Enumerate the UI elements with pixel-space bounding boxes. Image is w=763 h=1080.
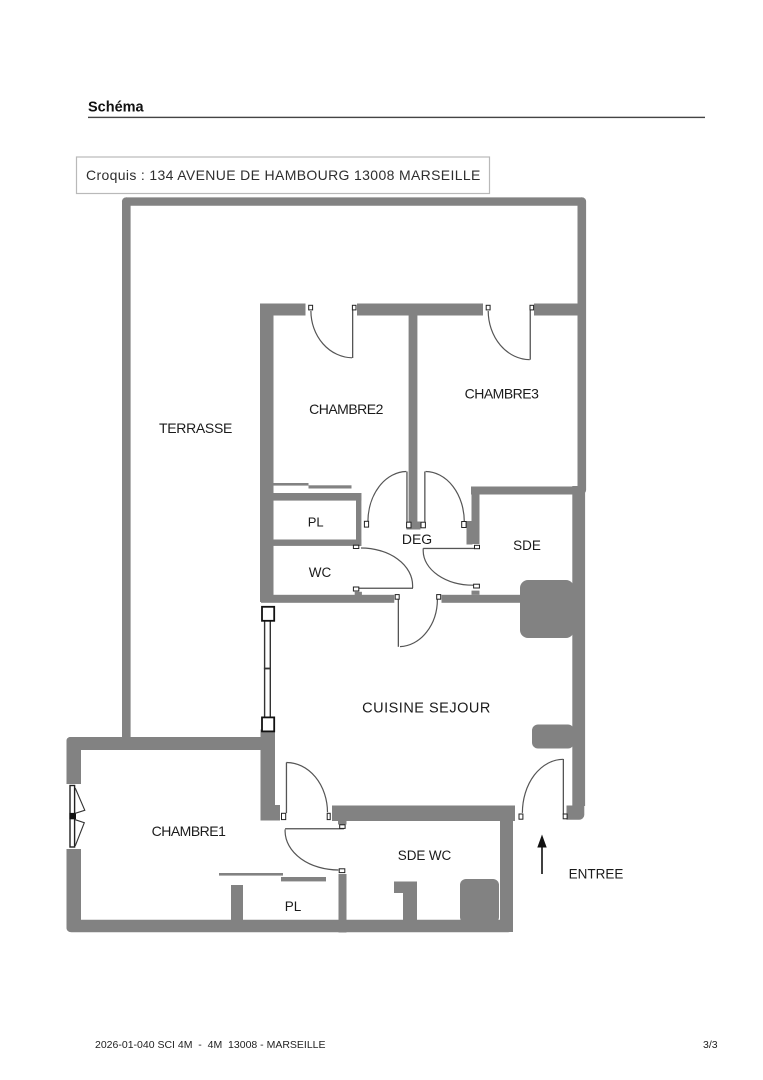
svg-text:CHAMBRE3: CHAMBRE3 <box>465 385 540 401</box>
svg-text:WC: WC <box>309 565 332 580</box>
svg-text:3/3: 3/3 <box>703 1039 718 1051</box>
svg-text:Schéma: Schéma <box>88 100 145 116</box>
svg-text:SDE: SDE <box>513 538 541 553</box>
svg-text:CHAMBRE1: CHAMBRE1 <box>152 823 227 839</box>
svg-text:DEG: DEG <box>402 531 432 547</box>
svg-text:Croquis : 134 AVENUE DE HAMBOU: Croquis : 134 AVENUE DE HAMBOURG 13008 M… <box>86 167 481 183</box>
svg-text:2026-01-040 SCI 4M - 4M 130: 2026-01-040 SCI 4M - 4M 13008 - MARSEILL… <box>95 1039 326 1051</box>
svg-text:TERRASSE: TERRASSE <box>159 420 232 436</box>
svg-text:SDE WC: SDE WC <box>398 848 452 863</box>
svg-text:PL: PL <box>308 514 324 529</box>
svg-text:PL: PL <box>285 899 302 914</box>
svg-text:ENTREE: ENTREE <box>569 866 624 881</box>
svg-text:CHAMBRE2: CHAMBRE2 <box>309 401 384 417</box>
svg-text:CUISINE SEJOUR: CUISINE SEJOUR <box>362 701 491 717</box>
